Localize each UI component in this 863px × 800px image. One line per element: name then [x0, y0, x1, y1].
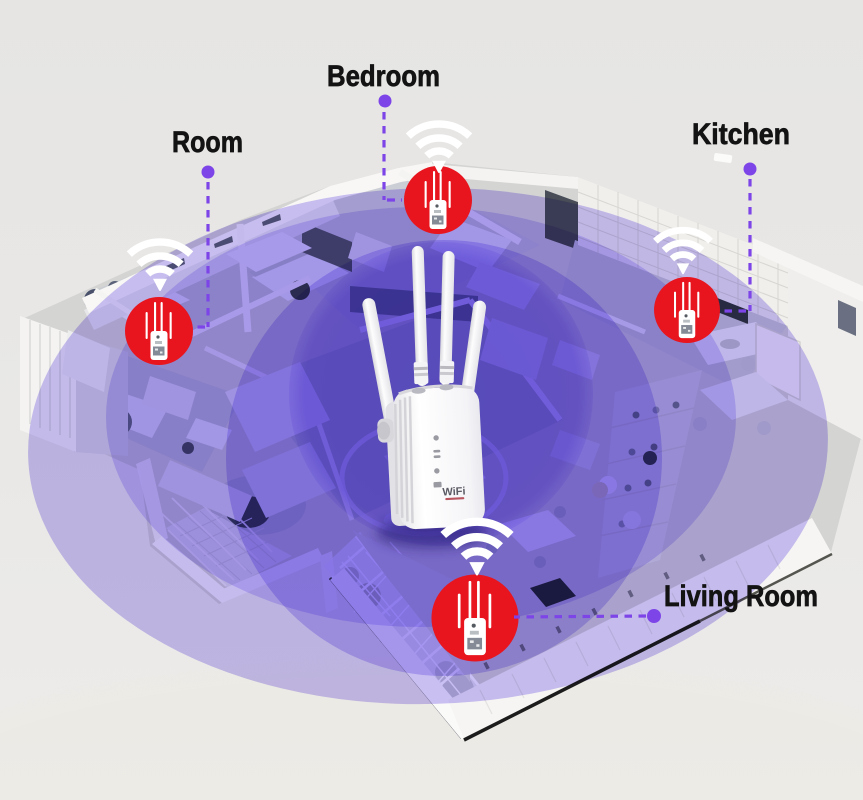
svg-text:WiFi: WiFi — [442, 485, 466, 498]
svg-text:Room: Room — [172, 126, 243, 159]
svg-text:Bedroom: Bedroom — [327, 60, 440, 93]
svg-text:Kitchen: Kitchen — [692, 118, 790, 151]
svg-text:Living Room: Living Room — [664, 580, 818, 613]
